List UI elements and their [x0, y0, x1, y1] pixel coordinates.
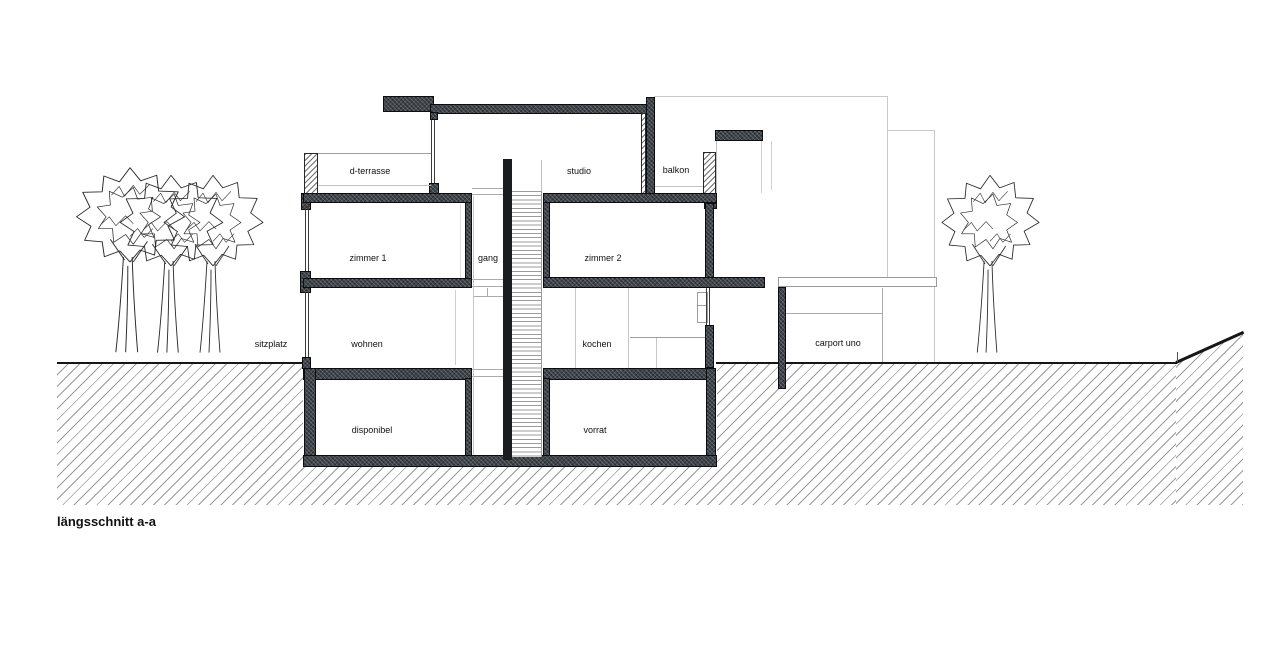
kitchen-right-wall — [705, 325, 714, 368]
studio-right-wall — [646, 97, 655, 194]
floor-slab — [543, 193, 717, 203]
zimmer2-left-wall — [543, 202, 550, 288]
room-label-wohnen: wohnen — [351, 339, 383, 349]
floor-slab — [303, 278, 472, 288]
room-label-studio: studio — [567, 166, 591, 176]
gang-floor-line — [472, 279, 503, 280]
kitchen-counter — [656, 338, 657, 368]
floor-slab — [303, 193, 472, 203]
room-label-kochen: kochen — [582, 339, 611, 349]
basement-wall — [543, 378, 550, 460]
gang-floor-line — [472, 376, 503, 377]
room-label-zimmer1: zimmer 1 — [349, 253, 386, 263]
tree-icon — [158, 164, 268, 362]
gang-ceiling-line — [472, 194, 503, 195]
kitchen-counter — [630, 337, 705, 338]
gang-ceiling-line — [472, 188, 503, 189]
room-label-balkon: balkon — [663, 165, 690, 175]
studio-left-glazing — [431, 120, 435, 184]
facade-glazing — [305, 204, 309, 272]
room-label-d-terrasse: d-terrasse — [350, 166, 391, 176]
kitchen-window — [706, 288, 710, 325]
stairwell-edge-line — [541, 160, 542, 193]
drawing-title: längsschnitt a-a — [57, 514, 156, 529]
facade-glazing — [305, 292, 309, 358]
background-outline — [771, 141, 772, 190]
handrail-line — [487, 288, 488, 296]
basement-wall — [465, 378, 472, 460]
gang-floor-line — [472, 369, 503, 370]
zimmer2-right-wall — [705, 203, 714, 278]
room-label-gang: gang — [478, 253, 498, 263]
room-label-vorrat: vorrat — [583, 425, 606, 435]
balcony-line — [761, 141, 762, 193]
zimmer1-right-wall — [465, 202, 472, 288]
floor-slab — [303, 368, 472, 380]
background-outline — [654, 96, 887, 97]
balcony-line — [716, 141, 717, 193]
basement-left-wall — [304, 368, 316, 465]
interior-line — [460, 204, 461, 278]
balcony-right-wall — [703, 152, 716, 194]
interior-line — [455, 290, 456, 365]
handrail-line — [474, 296, 503, 297]
balcony-parapet — [715, 130, 763, 141]
stair-treads — [512, 191, 542, 457]
stair-wall — [503, 159, 512, 460]
background-outline — [934, 130, 935, 362]
room-label-zimmer2: zimmer 2 — [584, 253, 621, 263]
terrace-parapet — [304, 153, 318, 194]
roof-parapet — [383, 96, 434, 112]
floor-slab — [543, 368, 710, 380]
gang-edge-line — [473, 196, 474, 455]
carport-inner-line — [786, 313, 882, 314]
section-drawing: d-terrasse studio balkon zimmer 1 gang z… — [0, 0, 1280, 651]
slope-tick — [1177, 352, 1178, 362]
room-label-sitzplatz: sitzplatz — [255, 339, 288, 349]
room-label-carport: carport uno — [815, 338, 861, 348]
kitchen-line — [628, 288, 629, 368]
carport-post — [778, 287, 786, 389]
room-label-disponibel: disponibel — [352, 425, 393, 435]
tree-icon — [936, 164, 1044, 362]
terrace-railing-line — [318, 153, 431, 154]
balcony-floor-line — [655, 186, 703, 187]
gang-floor-line — [472, 286, 503, 287]
studio-left-wall-head — [430, 112, 438, 120]
ground-line-left — [57, 362, 306, 364]
roof-slab — [430, 104, 648, 114]
kitchen-line — [575, 288, 576, 368]
background-outline — [887, 130, 934, 131]
background-outline — [887, 96, 888, 277]
carport-roof — [778, 277, 937, 287]
basement-right-wall — [706, 368, 716, 465]
floor-slab-with-canopy — [543, 277, 765, 288]
carport-back-line — [882, 288, 883, 362]
terrace-floor-line — [318, 185, 431, 186]
